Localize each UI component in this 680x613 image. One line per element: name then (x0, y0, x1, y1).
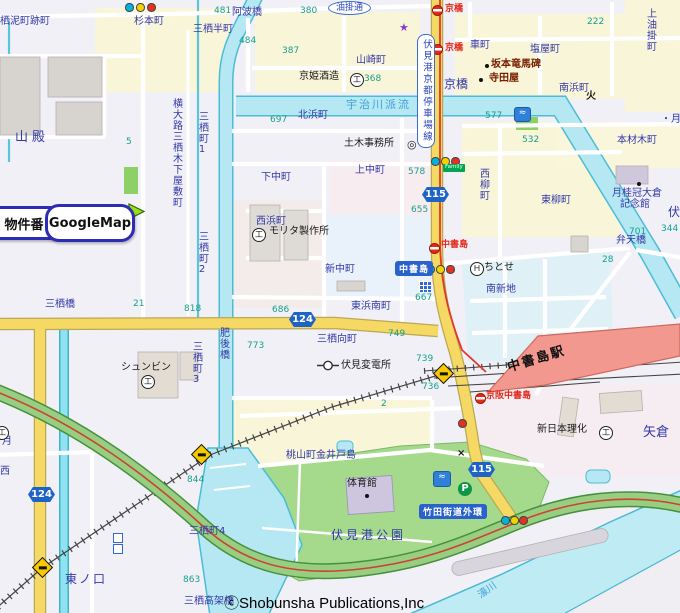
block-number: 749 (388, 330, 405, 339)
block-number: 655 (411, 206, 428, 215)
district-sudorocho: 栖泥町跡町 (0, 17, 50, 28)
bridge-bentenbashi: 弁天橋 (616, 236, 646, 247)
district-kitahamacho: 北浜町 (298, 111, 328, 122)
region-fills (95, 0, 680, 477)
bus-stop-icon (432, 5, 443, 16)
pool-icon: ≈ (433, 471, 451, 487)
block-number: 739 (416, 355, 433, 364)
block-number: 736 (422, 383, 439, 392)
district-misucho4: 三栖町4 (189, 527, 225, 538)
traffic-light-icon (136, 3, 145, 12)
district-fushi-partial: 伏 (668, 206, 680, 219)
block-number: 863 (183, 576, 200, 585)
poi-dot-teradaya (479, 78, 483, 82)
bus-stop-chushojima: 中書島 (441, 241, 468, 250)
factory-icon: 工 (141, 375, 155, 389)
poi-shinnihonrika: 新日本理化 (537, 425, 587, 436)
district-higashihamaminamicho: 東浜南町 (351, 302, 391, 313)
traffic-light-icon (431, 157, 440, 166)
poi-dot-taiikukan (365, 494, 369, 498)
block-number: 686 (272, 306, 289, 315)
poi-teradaya: 寺田屋 (489, 74, 519, 85)
road-name-badge-fushimiko-line: 伏見港京都停車場線 (417, 34, 435, 148)
block-number: 532 (522, 136, 539, 145)
hotel-icon: Ｈ (470, 262, 484, 276)
district-tsuki-partial: ・月 (661, 115, 680, 126)
block-number: 577 (485, 112, 502, 121)
district-misuhancho: 三栖半町 (193, 25, 233, 36)
block-number: 222 (587, 18, 604, 27)
bridge-kyobashi: 京橋 (444, 78, 468, 91)
googlemap-button[interactable]: GoogleMap (45, 204, 135, 242)
poi-sakamoto: 坂本竜馬碑 (491, 60, 541, 71)
parking-icon: P (458, 482, 472, 496)
block-number: 2 (381, 400, 387, 409)
poi-taiikukan: 体育館 (347, 479, 377, 490)
traffic-light-icon (519, 516, 528, 525)
traffic-light-icon (446, 265, 455, 274)
block-number: 481 (214, 7, 231, 16)
block-number: 773 (247, 342, 264, 351)
district-yamadono: 山殿 (15, 131, 49, 145)
block-number: 667 (415, 294, 432, 303)
poi-chitose: ちとせ (484, 263, 514, 274)
bridge-misubashi: 三栖橋 (45, 300, 75, 311)
road-sign-chushojima: 中書島 (395, 261, 433, 276)
district-kaminakacho: 上中町 (355, 166, 385, 177)
traffic-light-icon (458, 419, 467, 428)
poi-gekkeikan-line2: 記念館 (620, 200, 650, 211)
fire-station-icon: 火 (586, 92, 596, 103)
poi-doboku: 土木事務所 (344, 139, 394, 150)
district-yokoojimisu: 横大路三栖木下屋敷町 (170, 98, 181, 208)
route-shield-124: 124 (289, 312, 316, 327)
route-shield-115: 115 (468, 462, 495, 477)
block-number: 844 (187, 476, 204, 485)
district-shioyacho: 塩屋町 (530, 45, 560, 56)
bus-stop-kyobashi-2: 京橋 (445, 44, 463, 53)
poi-morita: モリタ製作所 (269, 227, 329, 238)
district-honzaimokucho: 本材木町 (617, 136, 657, 147)
road-name-badge-aburakake: 油掛通 (328, 1, 371, 15)
district-nishi-partial: 西 (0, 467, 10, 478)
poi-dot-gekkeikan (637, 182, 641, 186)
building-outline (113, 544, 123, 554)
route-shield-115: 115 (422, 187, 449, 202)
historic-site-star-icon: ★ (399, 22, 409, 34)
block-number: 818 (184, 305, 201, 314)
block-number: 484 (239, 37, 256, 46)
district-higashiyanagicho: 東柳町 (541, 196, 571, 207)
block-number: 28 (602, 256, 613, 265)
district-misucho1: 三栖町1 (196, 111, 207, 156)
substation-icon (317, 359, 339, 372)
district-misumukaicho: 三栖向町 (317, 335, 357, 346)
district-yagura: 矢倉 (643, 426, 669, 440)
block-number: 697 (270, 116, 287, 125)
map-viewport: 栖泥町跡町 杉本町 三栖半町 山殿 横大路三栖木下屋敷町 三栖町1 三栖町2 三… (0, 0, 680, 613)
poi-fushimiko-koen: 伏見港公園 (331, 529, 406, 542)
district-higashinokuchi: 東ノ口 (65, 573, 107, 586)
convenience-store-badge: Family (443, 164, 465, 172)
traffic-light-icon (501, 516, 510, 525)
poi-hendensho: 伏見変電所 (341, 361, 391, 372)
traffic-light-icon (436, 265, 445, 274)
district-shimonakacho: 下中町 (261, 173, 291, 184)
factory-icon: 工 (350, 73, 364, 87)
police-box-icon: × (457, 449, 465, 460)
district-nishiyanagicho: 西柳町 (477, 168, 488, 201)
public-building-icon (419, 281, 431, 292)
block-number: 578 (408, 168, 425, 177)
bus-stop-icon (475, 393, 486, 404)
bus-stop-keihan-chushojima: 京阪中書島 (486, 392, 531, 401)
bridge-awabashi: 阿波橋 (232, 8, 262, 19)
district-shinnakacho: 新中町 (325, 265, 355, 276)
district-minamihamacho: 南浜町 (559, 84, 589, 95)
block-number: 344 (661, 225, 678, 234)
building-outline (113, 533, 123, 543)
block-number: 701 (629, 228, 646, 237)
poi-dot-sakamoto (485, 64, 489, 68)
district-sugimotocho: 杉本町 (134, 17, 164, 28)
waterway-ujigawa-haryu: 宇治川派流 (346, 99, 411, 111)
poi-gekkeikan-line1: 月桂冠大倉 (612, 189, 662, 200)
district-yamazakicho: 山崎町 (356, 56, 386, 67)
district-kurumamachi: 車町 (470, 41, 490, 52)
pool-icon: ≈ (514, 107, 531, 122)
block-number: 368 (364, 75, 381, 84)
district-kamiaburakakecho: 上油掛町 (644, 8, 655, 52)
block-number: 5 (126, 138, 132, 147)
block-number: 387 (282, 47, 299, 56)
route-shield-124: 124 (28, 487, 55, 502)
bridge-higobashi: 肥後橋 (217, 327, 228, 360)
traffic-light-icon (510, 516, 519, 525)
district-minamishinchi: 南新地 (486, 285, 516, 296)
bus-stop-kyobashi-1: 京橋 (445, 5, 463, 14)
district-momoyamacho: 桃山町金井戸島 (286, 451, 356, 462)
block-number: 21 (133, 300, 144, 309)
road-sign-takeda-kaido: 竹田街道外環 (419, 504, 487, 519)
poi-kyohime: 京姫酒造 (299, 72, 339, 83)
property-number-button-label: 物件番 (4, 214, 43, 233)
poi-shunbin: シュンビン (121, 363, 171, 374)
block-number: 380 (300, 7, 317, 16)
traffic-light-icon (147, 3, 156, 12)
district-misucho3: 三栖町3 (190, 341, 201, 386)
bus-stop-icon (429, 243, 440, 254)
factory-icon: 工 (599, 426, 613, 440)
traffic-light-icon (125, 3, 134, 12)
factory-icon: 工 (252, 228, 266, 242)
copyright-notice: ⓒShobunsha Publications,Inc (224, 592, 424, 613)
district-misucho2: 三栖町2 (196, 231, 207, 276)
googlemap-button-label: GoogleMap (49, 216, 131, 231)
government-office-icon: ◎ (407, 139, 417, 151)
